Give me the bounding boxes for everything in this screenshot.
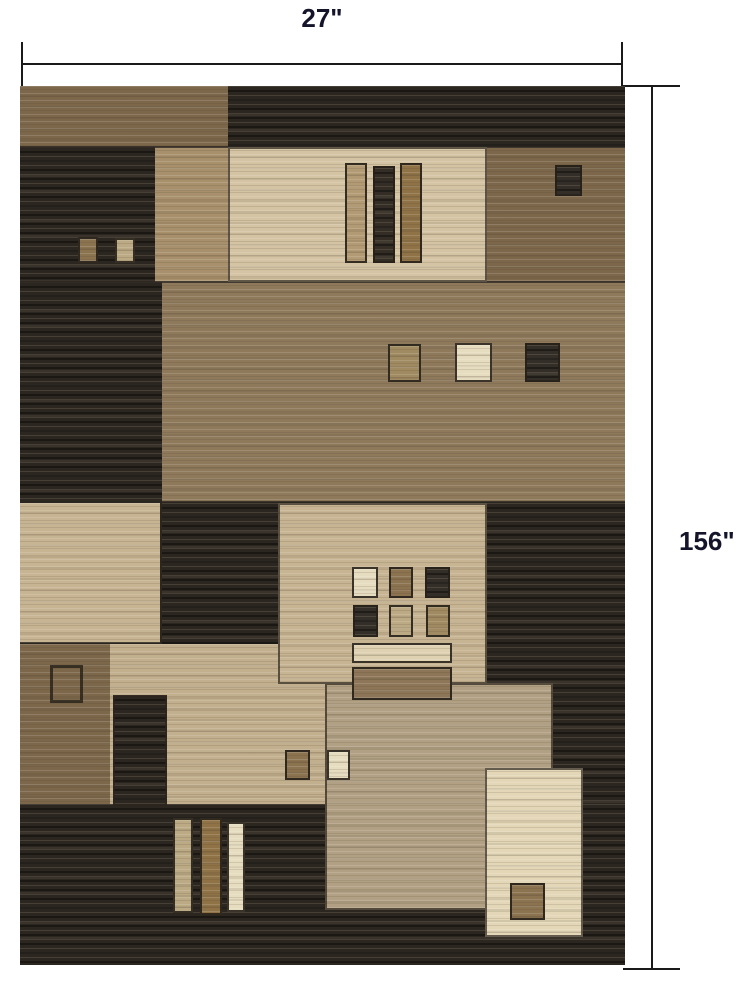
rug-block-left-beige [20,503,160,643]
rug-block-top-right-dark [228,86,625,147]
rug-horizontal-bar [352,643,452,663]
width-dimension-right-tick [621,42,623,86]
rug-vertical-bar [373,166,395,263]
rug-grid-square [389,605,413,637]
rug-block-center-dark [162,503,278,646]
height-dimension-label: 156" [679,527,735,555]
rug-accent-square [455,343,492,382]
rug-block-small-dark [113,695,167,806]
rug-block-upper-tan [155,147,228,282]
rug-accent-square [285,750,310,780]
rug-grid-square [353,605,378,637]
rug-vertical-bar [200,818,222,915]
rug-accent-square [388,344,421,382]
rug-accent-square [115,238,135,263]
rug-grid-square [425,567,450,598]
rug-accent-square [555,165,582,196]
width-dimension-label: 27" [21,4,623,32]
rug-block-top-left-brown [20,86,228,147]
rug-block-mid-brown-band [162,282,625,502]
rug-outline-square [50,665,83,703]
height-dimension-line [651,85,653,970]
rug-seam-line [20,642,160,644]
rug-vertical-bar [400,163,422,263]
rug-grid-square [389,567,413,598]
rug-image [20,86,625,965]
rug-accent-square [327,750,350,780]
rug-grid-square [426,605,450,637]
rug-vertical-bar [173,818,193,913]
width-dimension-line [21,63,623,65]
height-dimension-bottom-tick [623,968,680,970]
rug-grid-square [352,567,378,598]
rug-vertical-bar [227,822,245,912]
rug-horizontal-bar [352,667,452,700]
rug-accent-square [78,237,98,263]
rug-accent-square [510,883,545,920]
rug-accent-square [525,343,560,382]
rug-block-mid-left-dark [20,282,162,502]
height-dimension-top-tick [623,85,680,87]
width-dimension-left-tick [21,42,23,86]
rug-vertical-bar [345,163,367,263]
